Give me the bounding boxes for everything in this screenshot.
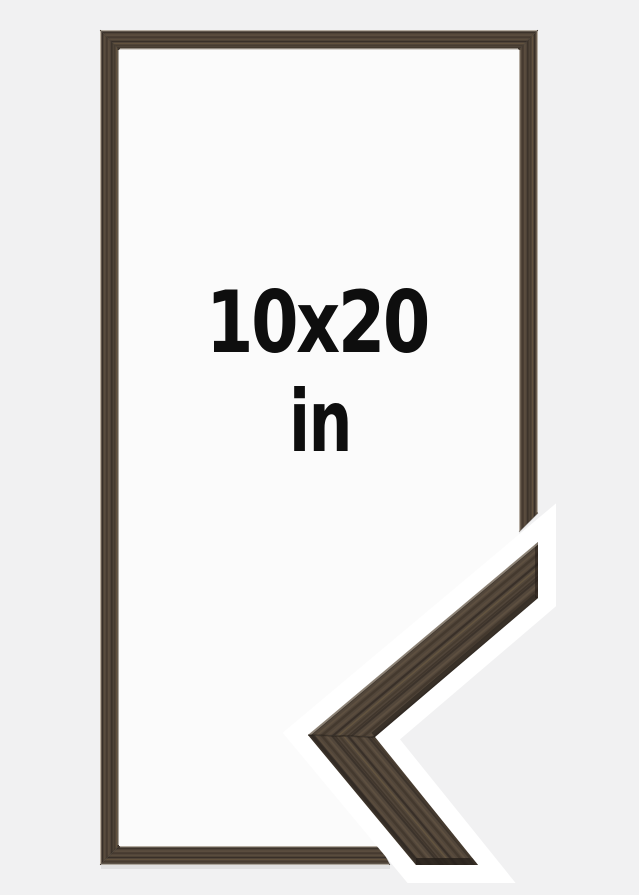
product-image: 10x20 in: [0, 0, 639, 895]
frame-bottom-shadow: [101, 865, 390, 869]
frame-top-bar: [100, 30, 538, 50]
frame-scene: 10x20 in: [0, 0, 639, 895]
frame-right-bar: [519, 30, 538, 532]
size-label-line2: in: [289, 372, 351, 472]
frame-left-bar: [100, 30, 119, 865]
size-label-line1: 10x20: [206, 273, 428, 373]
frame-bottom-bar: [100, 846, 390, 865]
